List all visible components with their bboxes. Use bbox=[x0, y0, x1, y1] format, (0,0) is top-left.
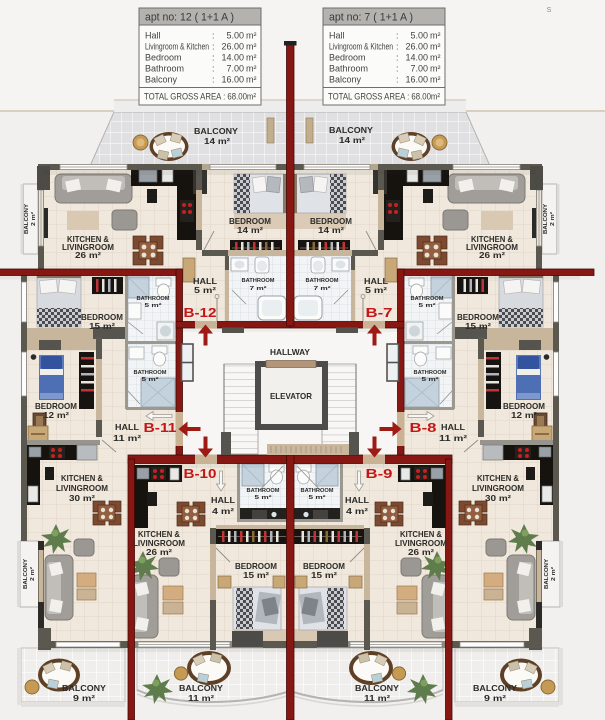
svg-text:m²: m² bbox=[246, 31, 257, 41]
svg-text:Hall: Hall bbox=[145, 31, 161, 41]
svg-text:16.00: 16.00 bbox=[221, 75, 244, 85]
svg-text:BALCONY: BALCONY bbox=[23, 559, 29, 589]
svg-text:BATHROOM: BATHROOM bbox=[306, 278, 339, 284]
svg-text:BALCONY: BALCONY bbox=[473, 683, 517, 693]
svg-text:m²: m² bbox=[246, 64, 257, 74]
svg-text:5 m²: 5 m² bbox=[255, 494, 272, 501]
svg-text:30 m²: 30 m² bbox=[485, 493, 511, 503]
svg-text:Bathroom: Bathroom bbox=[329, 64, 368, 74]
svg-text:Hall: Hall bbox=[329, 31, 345, 41]
svg-text:B-9: B-9 bbox=[366, 466, 393, 481]
svg-text:26 m²: 26 m² bbox=[479, 250, 505, 260]
svg-text:11 m²: 11 m² bbox=[113, 434, 141, 443]
svg-text:14.00: 14.00 bbox=[405, 53, 428, 63]
svg-text:5 m²: 5 m² bbox=[419, 302, 436, 309]
svg-text:4 m²: 4 m² bbox=[212, 507, 234, 516]
svg-text:KITCHEN &: KITCHEN & bbox=[61, 473, 103, 483]
svg-text:5 m²: 5 m² bbox=[422, 376, 439, 383]
svg-text:m²: m² bbox=[246, 53, 257, 63]
svg-text::: : bbox=[212, 31, 215, 41]
svg-text:9 m²: 9 m² bbox=[73, 693, 95, 703]
svg-text:2 m²: 2 m² bbox=[549, 212, 556, 226]
svg-text:HALLWAY: HALLWAY bbox=[270, 347, 310, 357]
svg-text:5 m²: 5 m² bbox=[194, 286, 216, 295]
svg-text:HALL: HALL bbox=[211, 496, 235, 505]
svg-text::: : bbox=[396, 31, 399, 41]
svg-text:BALCONY: BALCONY bbox=[355, 683, 399, 693]
svg-text:26 m²: 26 m² bbox=[75, 250, 101, 260]
svg-text:14 m²: 14 m² bbox=[339, 135, 365, 145]
svg-text:HALL: HALL bbox=[193, 277, 217, 286]
svg-text:7.00: 7.00 bbox=[410, 64, 428, 74]
svg-text:26 m²: 26 m² bbox=[408, 547, 434, 557]
svg-text:15 m²: 15 m² bbox=[465, 321, 491, 331]
svg-text:15 m²: 15 m² bbox=[311, 570, 337, 580]
svg-text:2 m²: 2 m² bbox=[29, 567, 36, 581]
svg-text:Balcony: Balcony bbox=[145, 75, 178, 85]
svg-text::: : bbox=[396, 75, 399, 85]
svg-text:5.00: 5.00 bbox=[410, 31, 428, 41]
svg-text:7.00: 7.00 bbox=[226, 64, 244, 74]
svg-text:2 m²: 2 m² bbox=[550, 567, 557, 581]
svg-text:BALCONY: BALCONY bbox=[544, 559, 550, 589]
svg-text:15 m²: 15 m² bbox=[89, 321, 115, 331]
svg-text:Balcony: Balcony bbox=[329, 75, 362, 85]
svg-text:BALCONY: BALCONY bbox=[329, 125, 373, 135]
svg-text:BATHROOM: BATHROOM bbox=[137, 296, 170, 302]
svg-text:m²: m² bbox=[430, 53, 441, 63]
svg-text:B-7: B-7 bbox=[366, 305, 393, 320]
svg-text:9 m²: 9 m² bbox=[484, 693, 506, 703]
svg-text:LIVINGROOM: LIVINGROOM bbox=[472, 483, 524, 493]
svg-text::: : bbox=[396, 42, 399, 52]
svg-text:S: S bbox=[547, 7, 552, 14]
svg-text:14 m²: 14 m² bbox=[318, 225, 344, 235]
svg-text:11 m²: 11 m² bbox=[188, 693, 214, 703]
svg-text:7 m²: 7 m² bbox=[250, 285, 267, 292]
svg-text:m²: m² bbox=[430, 64, 441, 74]
svg-text:BALCONY: BALCONY bbox=[194, 126, 238, 136]
svg-text:11 m²: 11 m² bbox=[439, 434, 467, 443]
svg-text:11 m²: 11 m² bbox=[364, 693, 390, 703]
svg-text:HALL: HALL bbox=[345, 496, 369, 505]
svg-text:14.00: 14.00 bbox=[221, 53, 244, 63]
svg-text:26 m²: 26 m² bbox=[146, 547, 172, 557]
svg-text::: : bbox=[212, 75, 215, 85]
svg-text:BATHROOM: BATHROOM bbox=[247, 488, 280, 494]
svg-text::: : bbox=[212, 53, 215, 63]
svg-text:BALCONY: BALCONY bbox=[62, 683, 106, 693]
svg-text:5 m²: 5 m² bbox=[145, 302, 162, 309]
svg-text:16.00: 16.00 bbox=[405, 75, 428, 85]
svg-text:14 m²: 14 m² bbox=[204, 136, 230, 146]
svg-text:26.00: 26.00 bbox=[405, 42, 428, 52]
svg-text:BALCONY: BALCONY bbox=[543, 204, 549, 234]
svg-text::: : bbox=[212, 42, 215, 52]
svg-text:30 m²: 30 m² bbox=[69, 493, 95, 503]
svg-text:BALCONY: BALCONY bbox=[24, 204, 30, 234]
svg-text:5 m²: 5 m² bbox=[142, 376, 159, 383]
svg-text:TOTAL GROSS AREA : 68.00m²: TOTAL GROSS AREA : 68.00m² bbox=[144, 91, 256, 102]
svg-text:HALL: HALL bbox=[115, 423, 139, 432]
svg-text:12 m²: 12 m² bbox=[43, 410, 69, 420]
svg-text:HALL: HALL bbox=[364, 277, 388, 286]
svg-text:4 m²: 4 m² bbox=[346, 507, 368, 516]
svg-text:Livingroom & Kitchen: Livingroom & Kitchen bbox=[329, 42, 393, 52]
svg-text:B-12: B-12 bbox=[184, 305, 217, 320]
svg-text:BATHROOM: BATHROOM bbox=[414, 370, 447, 376]
svg-text:5.00: 5.00 bbox=[226, 31, 244, 41]
svg-text:B-10: B-10 bbox=[184, 466, 217, 481]
svg-text:BATHROOM: BATHROOM bbox=[242, 278, 275, 284]
svg-text:BALCONY: BALCONY bbox=[179, 683, 223, 693]
svg-text:apt no: 12 ( 1+1 A ): apt no: 12 ( 1+1 A ) bbox=[145, 12, 234, 24]
svg-text:BATHROOM: BATHROOM bbox=[301, 488, 334, 494]
svg-text:14 m²: 14 m² bbox=[237, 225, 263, 235]
svg-text:KITCHEN &: KITCHEN & bbox=[477, 473, 519, 483]
svg-text::: : bbox=[396, 64, 399, 74]
svg-text:Bedroom: Bedroom bbox=[329, 53, 366, 63]
svg-text:2 m²: 2 m² bbox=[30, 212, 37, 226]
svg-text:m²: m² bbox=[246, 42, 257, 52]
svg-text:m²: m² bbox=[246, 75, 257, 85]
svg-text:m²: m² bbox=[430, 75, 441, 85]
svg-text:HALL: HALL bbox=[441, 423, 465, 432]
svg-text:BATHROOM: BATHROOM bbox=[411, 296, 444, 302]
svg-text:m²: m² bbox=[430, 42, 441, 52]
svg-text:7 m²: 7 m² bbox=[314, 285, 331, 292]
svg-text:12 m²: 12 m² bbox=[511, 410, 537, 420]
svg-text:BATHROOM: BATHROOM bbox=[134, 370, 167, 376]
svg-text:m²: m² bbox=[430, 31, 441, 41]
svg-text:apt no: 7 ( 1+1 A ): apt no: 7 ( 1+1 A ) bbox=[329, 12, 413, 24]
svg-text:B-8: B-8 bbox=[410, 420, 437, 435]
svg-text::: : bbox=[396, 53, 399, 63]
svg-text:5 m²: 5 m² bbox=[365, 286, 387, 295]
svg-text:TOTAL GROSS AREA : 68.00m²: TOTAL GROSS AREA : 68.00m² bbox=[328, 91, 440, 102]
svg-text:ELEVATOR: ELEVATOR bbox=[270, 391, 312, 401]
svg-text:Livingroom & Kitchen: Livingroom & Kitchen bbox=[145, 42, 209, 52]
svg-text:B-11: B-11 bbox=[144, 420, 177, 435]
svg-text:15 m²: 15 m² bbox=[243, 570, 269, 580]
svg-text:Bathroom: Bathroom bbox=[145, 64, 184, 74]
svg-text:5 m²: 5 m² bbox=[309, 494, 326, 501]
svg-text:LIVINGROOM: LIVINGROOM bbox=[56, 483, 108, 493]
svg-text:26.00: 26.00 bbox=[221, 42, 244, 52]
svg-text:Bedroom: Bedroom bbox=[145, 53, 182, 63]
svg-text::: : bbox=[212, 64, 215, 74]
